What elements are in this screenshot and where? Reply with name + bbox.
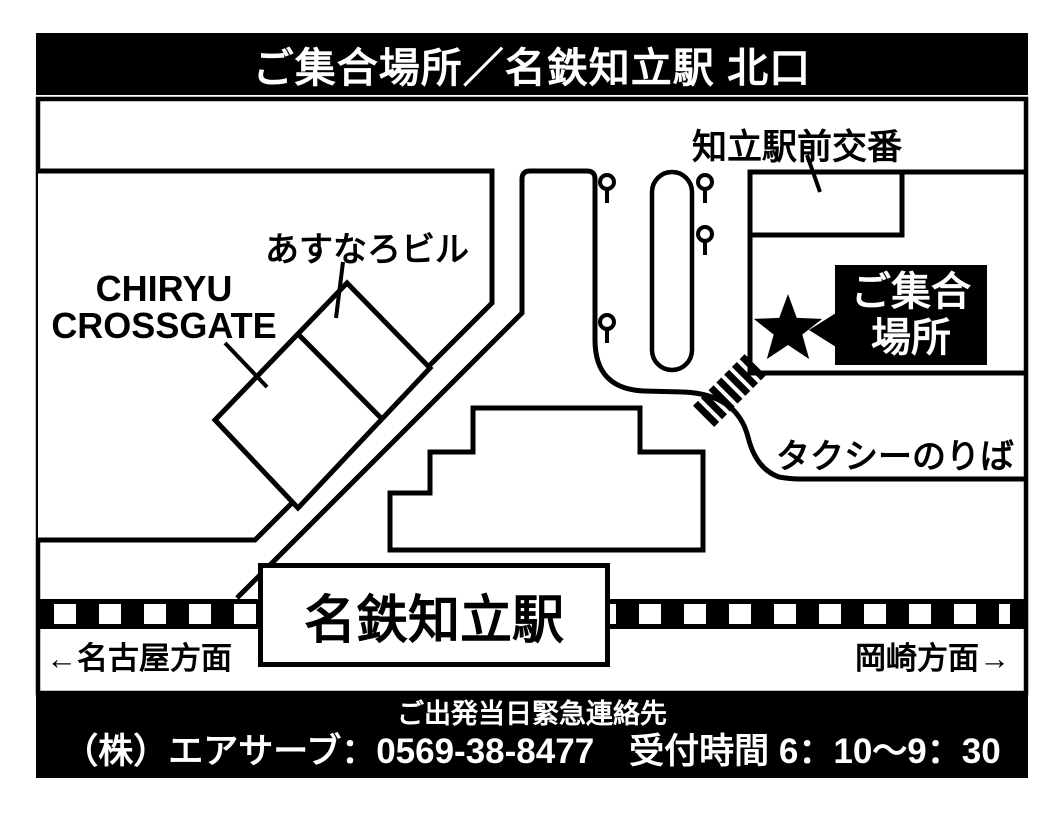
meeting-bubble-tail: [809, 313, 836, 347]
meeting-point-line1: ご集合: [851, 269, 971, 315]
meeting-point-callout: ご集合 場所: [835, 265, 987, 365]
taxi-stand-label: タクシーのりば: [776, 429, 1014, 478]
rotary-island: [652, 172, 692, 370]
station-name-box: 名鉄知立駅: [258, 563, 610, 667]
direction-west-label: ←名古屋方面: [46, 633, 232, 678]
footer-emergency-title: ご出発当日緊急連絡先: [397, 700, 667, 730]
meeting-point-line2: 場所: [871, 315, 951, 361]
street-lamp-icon: [698, 227, 712, 255]
crosswalk-stripes: [695, 357, 763, 425]
direction-east-label: 岡崎方面→: [760, 633, 1010, 678]
street-lamp-icon: [600, 175, 614, 203]
crossgate-label-line1: CHIRYU: [50, 271, 278, 308]
footer-banner: ご出発当日緊急連絡先 （株）エアサーブ：0569-38-8477 受付時間 6：…: [36, 693, 1028, 778]
crossgate-label-line2: CROSSGATE: [50, 308, 278, 345]
station-building: [390, 408, 703, 550]
koban-building: [750, 172, 902, 235]
street-lamp-icon: [698, 175, 712, 203]
asunaro-label: あすなろビル: [265, 222, 469, 271]
footer-contact-info: （株）エアサーブ：0569-38-8477 受付時間 6：10～9：30: [63, 733, 1000, 772]
station-name-label: 名鉄知立駅: [304, 578, 564, 653]
map-page: ご集合場所／名鉄知立駅 北口: [0, 0, 1063, 815]
crossgate-label: CHIRYU CROSSGATE: [50, 271, 278, 344]
koban-label: 知立駅前交番: [692, 119, 902, 170]
street-lamp-icon: [600, 315, 614, 343]
